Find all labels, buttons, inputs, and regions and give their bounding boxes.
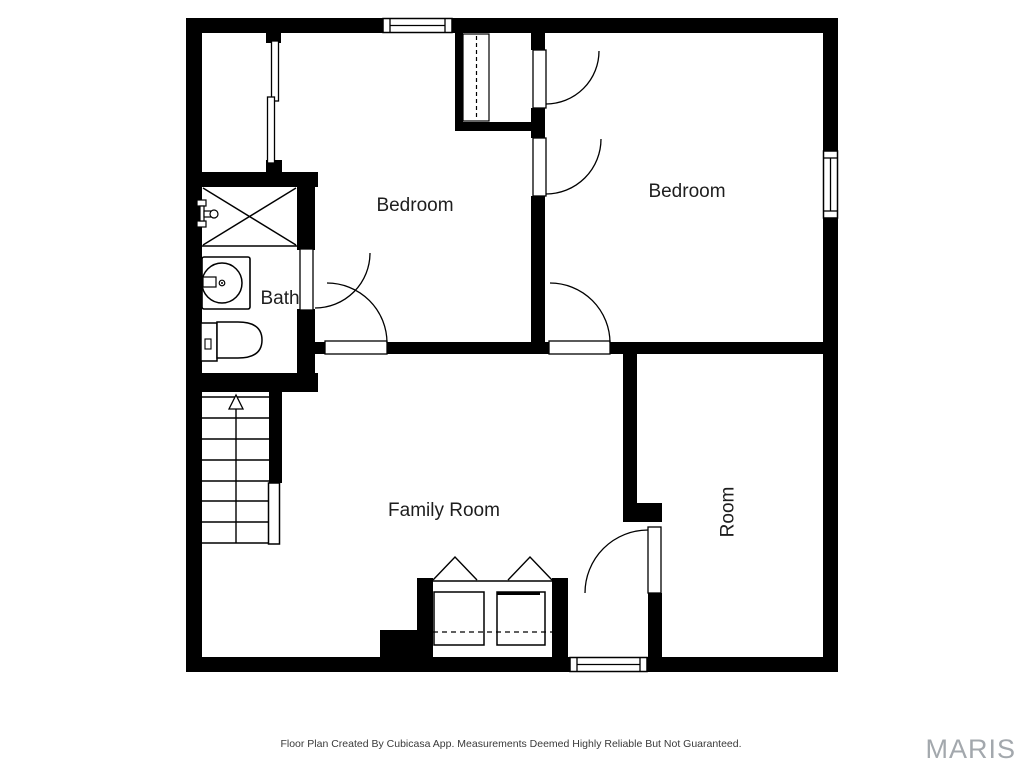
door-room-icon bbox=[585, 527, 661, 593]
sink-tap-icon bbox=[203, 277, 216, 287]
wall-closet-left bbox=[455, 33, 463, 131]
wall-bedroom-divider-a bbox=[531, 30, 545, 50]
wall-exterior-top bbox=[186, 18, 838, 33]
door-closet-icon bbox=[533, 50, 599, 108]
window-top bbox=[383, 19, 452, 33]
room-labels: Bedroom Bedroom Bath Family Room Room bbox=[260, 181, 738, 537]
wall-exterior-bottom bbox=[186, 657, 838, 672]
appliance-right bbox=[497, 592, 545, 645]
label-bedroom-right: Bedroom bbox=[648, 181, 725, 202]
door-bedroom-left-icon bbox=[325, 283, 387, 354]
wall-room-left bbox=[623, 342, 637, 522]
wall-step-block bbox=[380, 630, 418, 660]
sink-icon bbox=[202, 257, 250, 309]
wall-cabinet-post-right bbox=[552, 578, 568, 660]
wall-room-jog bbox=[623, 503, 662, 522]
wall-bath-bottom bbox=[186, 373, 318, 392]
wall-closet-bottom bbox=[455, 122, 531, 131]
bifold-panel-left-icon bbox=[433, 557, 477, 580]
door-bath-icon bbox=[300, 249, 370, 310]
bifold-closet-icon bbox=[433, 557, 552, 645]
toilet-bowl bbox=[217, 322, 262, 358]
wall-bedroom-divider-b bbox=[531, 108, 545, 138]
sliding-door-icon bbox=[268, 41, 279, 163]
wall-bath-right-upper bbox=[297, 172, 315, 250]
door-bedrooms-connecting-icon bbox=[533, 138, 601, 196]
label-family-room: Family Room bbox=[388, 500, 500, 521]
label-bath: Bath bbox=[260, 288, 299, 309]
wall-cabinet-post-left bbox=[417, 578, 433, 660]
wall-bedroom-divider-c bbox=[531, 196, 545, 354]
wardrobe-icon bbox=[463, 34, 489, 121]
shower-icon bbox=[197, 188, 297, 246]
label-bedroom-left: Bedroom bbox=[376, 195, 453, 216]
toilet-button bbox=[205, 339, 211, 349]
walls bbox=[186, 18, 838, 672]
appliance-left bbox=[434, 592, 484, 645]
window-right bbox=[824, 151, 838, 218]
door-bedroom-right-icon bbox=[549, 283, 610, 354]
wall-horizontal-3 bbox=[610, 342, 838, 354]
shower-valve-icon bbox=[197, 200, 218, 227]
toilet-icon bbox=[201, 322, 262, 361]
label-room: Room bbox=[718, 487, 739, 538]
wall-exterior-left bbox=[186, 18, 202, 672]
stairs-railing bbox=[269, 483, 280, 544]
stairs-icon bbox=[202, 395, 280, 544]
wall-horizontal-2 bbox=[387, 342, 550, 354]
bifold-panel-right-icon bbox=[508, 557, 552, 580]
wall-stairs-right bbox=[269, 383, 282, 483]
wall-room-below-door bbox=[648, 593, 662, 665]
maris-watermark: MARIS bbox=[925, 734, 1016, 764]
floor-plan-canvas: Bedroom Bedroom Bath Family Room Room Fl… bbox=[0, 0, 1024, 768]
footer-disclaimer: Floor Plan Created By Cubicasa App. Meas… bbox=[280, 738, 741, 750]
floor-plan-page: Bedroom Bedroom Bath Family Room Room Fl… bbox=[0, 0, 1024, 768]
window-bottom bbox=[570, 658, 647, 672]
